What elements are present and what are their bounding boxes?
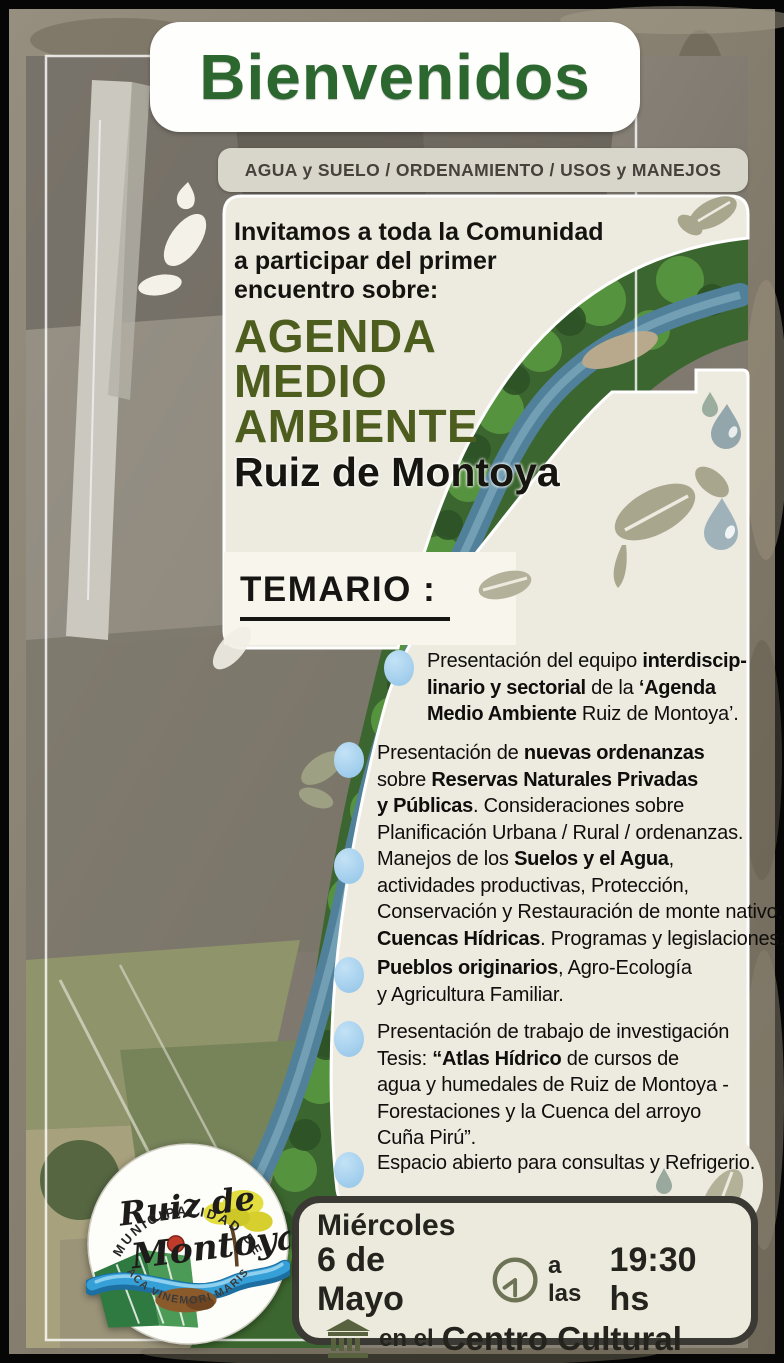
- list-item: Presentación de nuevas ordenanzassobre R…: [334, 740, 743, 846]
- list-item-text: Espacio abierto para consultas y Refrige…: [377, 1150, 755, 1177]
- list-item: Espacio abierto para consultas y Refrige…: [334, 1150, 755, 1188]
- event-time-label: a las: [548, 1252, 600, 1308]
- water-drop-bullet-icon: [334, 1021, 364, 1057]
- list-item-text: Manejos de los Suelos y el Agua,activida…: [377, 846, 784, 952]
- list-item: Presentación del equipo interdiscip-lina…: [384, 648, 747, 728]
- event-time: 19:30 hs: [610, 1241, 741, 1319]
- event-date: 6 de Mayo: [317, 1241, 476, 1319]
- list-item-text: Pueblos originarios, Agro-Ecologíay Agri…: [377, 955, 692, 1008]
- topics-bar: AGUA y SUELO / ORDENAMIENTO / USOS y MAN…: [218, 148, 748, 192]
- building-icon: [325, 1319, 371, 1359]
- list-item-text: Presentación del equipo interdiscip-lina…: [427, 648, 747, 728]
- event-venue-label: en el: [379, 1325, 434, 1353]
- agenda-subtitle: Ruiz de Montoya: [234, 449, 560, 496]
- temario-heading: TEMARIO :: [240, 570, 450, 621]
- water-drop-bullet-icon: [384, 650, 414, 686]
- poster-canvas: Bienvenidos AGUA y SUELO / ORDENAMIENTO …: [0, 0, 784, 1363]
- water-drop-bullet-icon: [334, 957, 364, 993]
- list-item: Pueblos originarios, Agro-Ecologíay Agri…: [334, 955, 692, 1008]
- clock-icon: [490, 1254, 540, 1306]
- water-drop-bullet-icon: [334, 848, 364, 884]
- event-day: Miércoles: [317, 1211, 741, 1241]
- list-item: Presentación de trabajo de investigación…: [334, 1019, 729, 1152]
- intro-text: Invitamos a toda la Comunidada participa…: [234, 218, 614, 305]
- event-box: Miércoles 6 de Mayo a las 19:30 hs en el: [292, 1196, 758, 1345]
- water-drop-bullet-icon: [334, 1152, 364, 1188]
- water-drop-bullet-icon: [334, 742, 364, 778]
- page-title: Bienvenidos: [199, 40, 591, 114]
- title-banner: Bienvenidos: [150, 22, 640, 132]
- list-item-text: Presentación de nuevas ordenanzassobre R…: [377, 740, 743, 846]
- list-item-text: Presentación de trabajo de investigación…: [377, 1019, 729, 1152]
- municipality-logo: Ruiz de Montoya MUNICIPALIDAD DE ACA VIN…: [86, 1142, 290, 1346]
- event-venue: Centro Cultural: [442, 1320, 682, 1358]
- agenda-title: AGENDAMEDIOAMBIENTE: [234, 314, 478, 449]
- list-item: Manejos de los Suelos y el Agua,activida…: [334, 846, 784, 952]
